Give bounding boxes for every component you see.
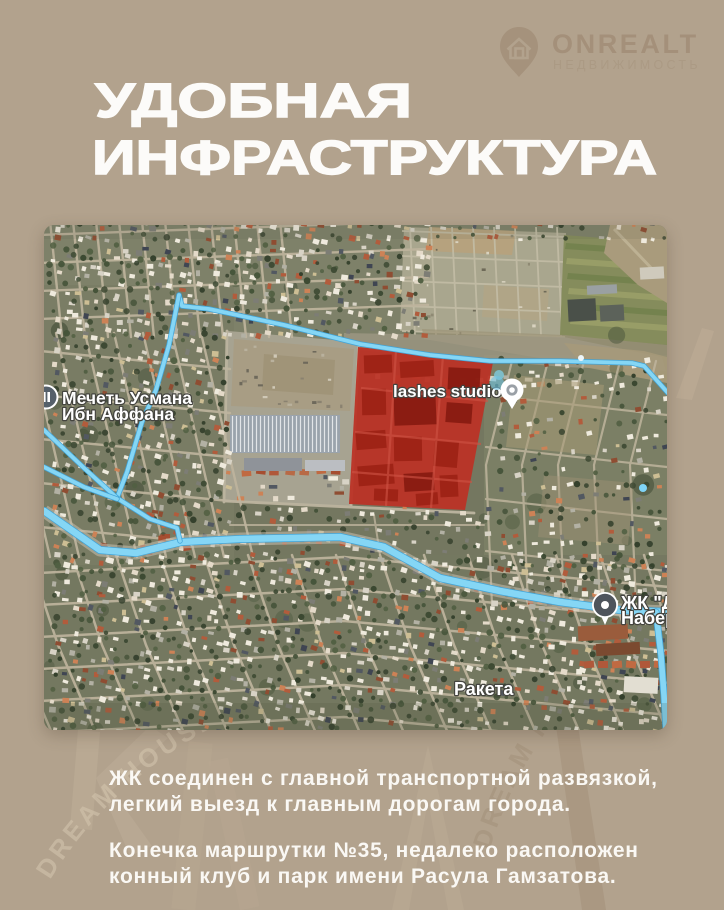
svg-text:lashes studio: lashes studio — [393, 382, 502, 401]
svg-text:НЕДВИЖИМОСТЬ: НЕДВИЖИМОСТЬ — [553, 58, 701, 72]
svg-text:Ибн Аффана: Ибн Аффана — [62, 404, 174, 424]
svg-text:ONREALT: ONREALT — [552, 29, 699, 59]
svg-text:Ракета: Ракета — [454, 679, 514, 699]
svg-text:Набер: Набер — [621, 608, 667, 628]
